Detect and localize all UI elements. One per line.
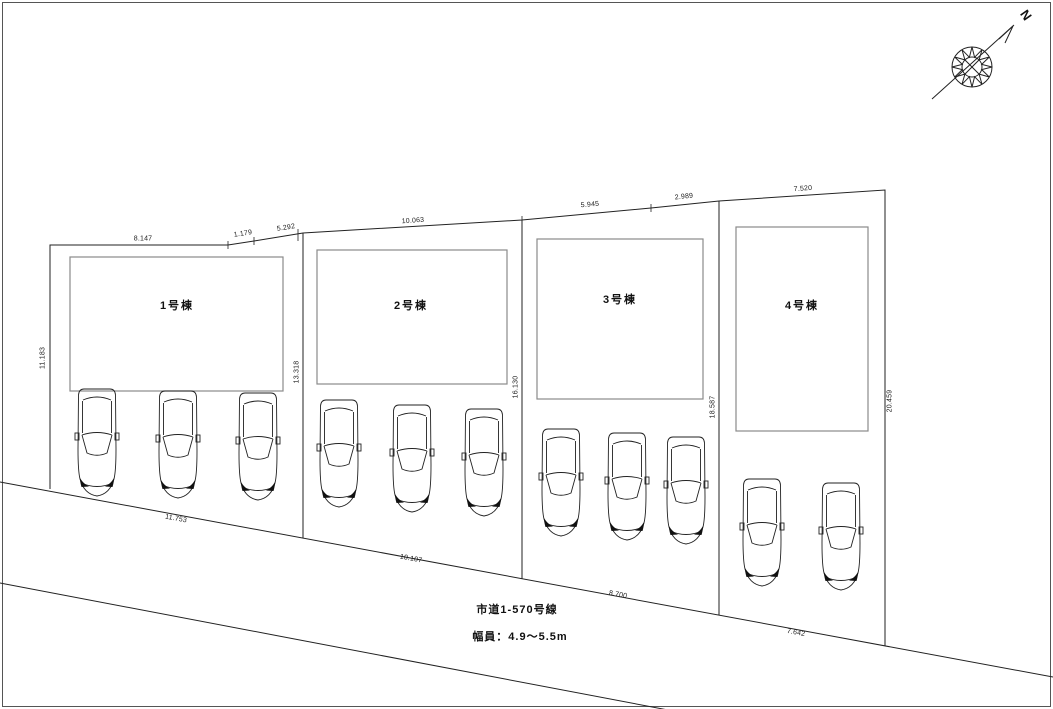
parking-lot-3 <box>539 429 708 544</box>
car-icon <box>75 389 119 496</box>
car-icon <box>156 391 200 498</box>
parking-lot-4 <box>740 479 863 590</box>
building-1-outline <box>70 257 283 391</box>
car-icon <box>390 405 434 512</box>
building-2-label: 2号棟 <box>394 297 428 313</box>
dim-side-4: 18.587 <box>710 396 717 419</box>
car-icon <box>664 437 708 544</box>
building-3-outline <box>537 239 703 399</box>
road-edge-near <box>0 482 1053 677</box>
dim-side-1: 11.183 <box>40 347 47 369</box>
car-icon <box>819 483 863 590</box>
car-icon <box>462 409 506 516</box>
car-icon <box>605 433 649 540</box>
road-edge-far <box>0 583 668 709</box>
building-4-label: 4号棟 <box>785 297 819 313</box>
car-icon <box>317 400 361 507</box>
dim-side-2: 13.318 <box>294 361 301 384</box>
dim-top-1: 8.147 <box>134 236 153 243</box>
parking-lot-2 <box>317 400 506 516</box>
building-3-label: 3号棟 <box>603 291 637 307</box>
road-name-label: 市道1-570号線 <box>476 601 557 617</box>
car-icon <box>236 393 280 500</box>
road-width-label: 幅員：4.9〜5.5m <box>472 628 567 644</box>
building-4-outline <box>736 227 868 431</box>
building-2-outline <box>317 250 507 384</box>
car-icon <box>740 479 784 586</box>
dim-top-7: 7.520 <box>794 185 813 193</box>
site-plan-canvas: 8.147 1.179 5.292 10.063 5.945 2.989 7.5… <box>0 0 1053 709</box>
north-arrow-icon <box>932 25 1014 99</box>
dim-side-5: 20.459 <box>887 390 894 413</box>
parking-lot-1 <box>75 389 280 500</box>
building-1-label: 1号棟 <box>160 297 194 313</box>
dim-side-3: 16.130 <box>513 376 520 399</box>
car-icon <box>539 429 583 536</box>
